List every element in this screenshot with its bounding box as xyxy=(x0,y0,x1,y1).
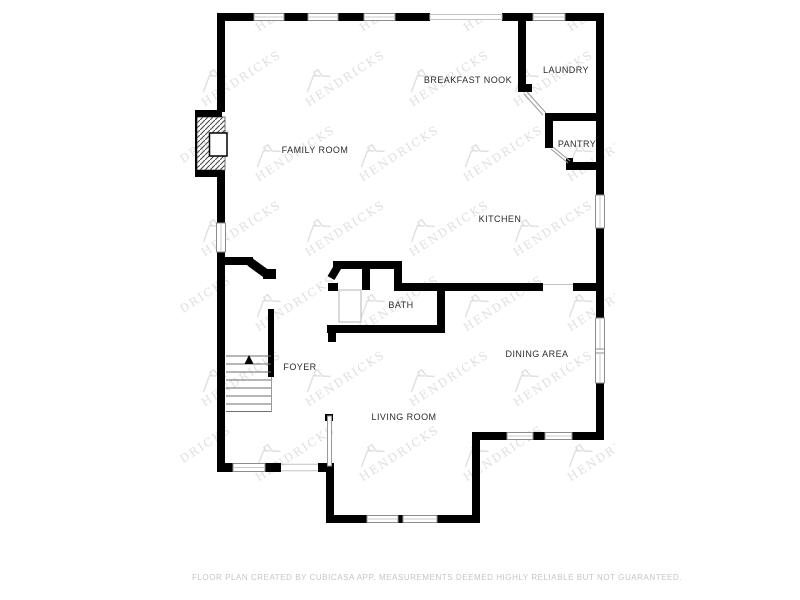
room-label-family-room: FAMILY ROOM xyxy=(282,145,349,155)
wall-segment xyxy=(398,515,403,523)
floor-plan: HENDRICKSHENDRICKSHENDRICKSHENDRICKSHEND… xyxy=(0,0,800,600)
wall-segment xyxy=(480,432,507,440)
window xyxy=(533,14,565,21)
window xyxy=(254,14,284,21)
window xyxy=(308,14,338,21)
room-label-pantry: PANTRY xyxy=(558,139,596,149)
wall-segment xyxy=(394,261,402,291)
fireplace-cap xyxy=(195,170,222,177)
staircase xyxy=(226,355,271,412)
laundry-door-swing xyxy=(524,92,546,115)
walls xyxy=(217,13,604,523)
fireplace-cap xyxy=(195,110,222,117)
wall-segment xyxy=(596,228,604,318)
wall-segment xyxy=(518,13,526,92)
room-label-breakfast-nook: BREAKFAST NOOK xyxy=(424,75,512,85)
wall-segment xyxy=(472,432,480,523)
footer-disclaimer: FLOOR PLAN CREATED BY CUBICASA APP. MEAS… xyxy=(192,573,682,582)
window xyxy=(596,318,605,349)
wall-segment xyxy=(217,170,225,223)
firebox xyxy=(210,133,228,156)
window xyxy=(596,353,605,383)
wall-segment xyxy=(328,333,336,342)
window xyxy=(403,516,437,523)
closet-front xyxy=(339,290,361,322)
wall-segment xyxy=(338,13,364,21)
wall-segment xyxy=(217,13,225,112)
wall-segment xyxy=(545,113,604,121)
wall-segment xyxy=(395,13,430,21)
window xyxy=(596,195,605,228)
wall-chamfer xyxy=(331,263,340,278)
wall-segment xyxy=(394,283,543,291)
window xyxy=(364,14,395,21)
wall-segment xyxy=(596,383,604,440)
wall-segment xyxy=(326,463,334,523)
wall-segment xyxy=(217,252,225,463)
wall-segment xyxy=(502,13,533,21)
wall-segment xyxy=(217,463,233,472)
fireplace xyxy=(195,110,227,177)
rear-opening xyxy=(430,15,502,20)
wall-segment xyxy=(566,162,604,170)
wall-segment xyxy=(268,309,274,377)
wall-segment xyxy=(362,261,370,290)
wall-segment xyxy=(327,325,445,333)
room-label-foyer: FOYER xyxy=(283,362,316,372)
room-label-dining-area: DINING AREA xyxy=(506,349,569,359)
room-label-kitchen: KITCHEN xyxy=(479,214,522,224)
wall-segment xyxy=(265,463,281,472)
wall-segment xyxy=(573,283,604,291)
railing xyxy=(328,416,332,466)
room-label-laundry: LAUNDRY xyxy=(543,65,589,75)
window xyxy=(233,464,265,472)
wall-segment xyxy=(533,432,545,440)
room-label-living-room: LIVING ROOM xyxy=(372,412,437,422)
room-label-bath: BATH xyxy=(388,300,413,310)
windows xyxy=(217,14,605,523)
fireplace-side xyxy=(195,110,197,177)
window xyxy=(596,349,605,353)
wall-segment xyxy=(518,84,532,92)
wall-segment xyxy=(326,515,367,523)
window xyxy=(507,433,533,440)
window xyxy=(545,433,572,440)
wall-segment xyxy=(284,13,308,21)
wall-segment xyxy=(328,283,338,291)
wall-segment xyxy=(263,269,276,279)
window xyxy=(217,223,226,252)
wall-segment xyxy=(545,113,553,148)
window xyxy=(367,516,398,523)
